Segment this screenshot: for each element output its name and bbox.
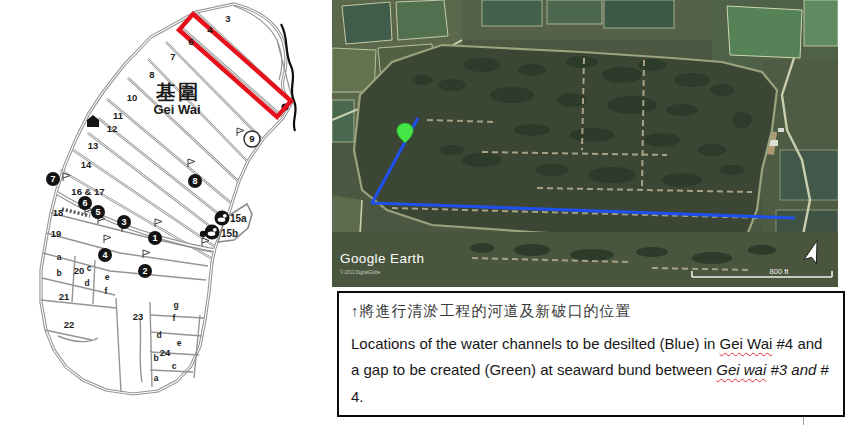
pond-label: d — [84, 278, 89, 288]
map-title-chinese: 基圍 — [155, 81, 200, 103]
bird-hide-label: 15a — [230, 213, 247, 224]
caption-english: Locations of the water channels to be de… — [351, 331, 831, 410]
pond-label: 18 — [53, 207, 64, 218]
pond-label: 16 & 17 — [71, 186, 104, 197]
pond-label: b — [153, 353, 158, 363]
caption-chinese: ↑將進行清淤工程的河道及新破口的位置 — [351, 302, 831, 321]
pond-label: e — [177, 338, 182, 348]
svg-text:9: 9 — [249, 133, 254, 144]
table-gridline — [803, 417, 804, 425]
pond-label: 3 — [225, 13, 230, 24]
pond-label: 24 — [160, 347, 171, 358]
numbered-marker-1: 1 — [148, 231, 162, 245]
pond-label: 23 — [133, 311, 144, 322]
pond-label: 22 — [64, 319, 75, 330]
pond-label: a — [57, 252, 62, 262]
svg-text:3: 3 — [121, 217, 126, 227]
figure-page: 基圍 Gei Wai 34678101112131416 & 171819202… — [0, 0, 851, 425]
gei-wai-map-figure: 基圍 Gei Wai 34678101112131416 & 171819202… — [0, 0, 330, 415]
bird-hide-label: 15b — [221, 228, 238, 239]
pond-strip-lines — [60, 6, 293, 258]
numbered-marker-2: 2 — [138, 264, 152, 278]
numbered-marker-3: 3 — [117, 215, 131, 229]
pond-label: c — [172, 361, 177, 371]
numbered-marker-6: 6 — [78, 196, 92, 210]
pond-label: 6 — [188, 36, 193, 47]
imagery-attribution: © 2013 DigitalGlobe — [340, 269, 381, 275]
svg-text:2: 2 — [142, 266, 147, 276]
pond-label: 14 — [81, 159, 92, 170]
satellite-image: Google Earth © 2013 DigitalGlobe 800 ft — [332, 0, 838, 287]
svg-text:5: 5 — [95, 207, 100, 217]
svg-text:4: 4 — [102, 250, 107, 260]
pond-label: 7 — [170, 51, 175, 62]
bird-hide-15a-icon — [215, 211, 230, 226]
satellite-svg: Google Earth © 2013 DigitalGlobe 800 ft — [332, 0, 838, 287]
pond-label: e — [105, 272, 110, 282]
pond-label: b — [56, 268, 61, 278]
svg-text:7: 7 — [50, 174, 55, 184]
pond-label: 19 — [51, 228, 62, 239]
numbered-marker-4: 4 — [98, 248, 112, 262]
numbered-marker-7: 7 — [46, 172, 60, 186]
pond-label: 8 — [149, 69, 154, 80]
pond-label: 11 — [113, 110, 124, 121]
caption-italic-ref: #3 and — [770, 361, 816, 378]
pond-label: 10 — [127, 92, 138, 103]
pond-label: d — [156, 330, 161, 340]
pond-label: f — [173, 313, 176, 323]
caption-en-part: Locations of the water channels to be de… — [351, 335, 720, 352]
pond-label: 20 — [74, 265, 85, 276]
svg-text:1: 1 — [152, 233, 157, 243]
caption-box: ↑將進行清淤工程的河道及新破口的位置 Locations of the wate… — [337, 291, 845, 417]
gei-wai-map-svg: 基圍 Gei Wai 34678101112131416 & 171819202… — [0, 0, 330, 415]
pond-label: c — [87, 263, 92, 273]
svg-text:8: 8 — [192, 176, 197, 186]
scale-label: 800 ft — [770, 267, 790, 276]
pond-label: 12 — [107, 123, 118, 134]
google-earth-watermark: Google Earth — [340, 251, 424, 266]
pond-label: 4 — [207, 24, 213, 35]
open-circle-marker-9: 9 — [244, 131, 260, 147]
pond-label: f — [105, 286, 108, 296]
gei-wai-outline — [41, 4, 292, 394]
pond-label: g — [173, 300, 178, 310]
pond-label: a — [154, 373, 159, 383]
svg-text:6: 6 — [82, 198, 87, 208]
bird-hide-15b-icon — [205, 225, 220, 240]
numbered-marker-5: 5 — [91, 205, 105, 219]
caption-gei-wai-1: Gei Wai — [720, 335, 773, 352]
pond-label: 21 — [59, 291, 70, 302]
caption-gei-wai-2: Gei wai — [716, 361, 766, 378]
pond-label: 13 — [88, 140, 99, 151]
numbered-marker-8: 8 — [188, 174, 202, 188]
map-title-english: Gei Wai — [153, 102, 200, 117]
